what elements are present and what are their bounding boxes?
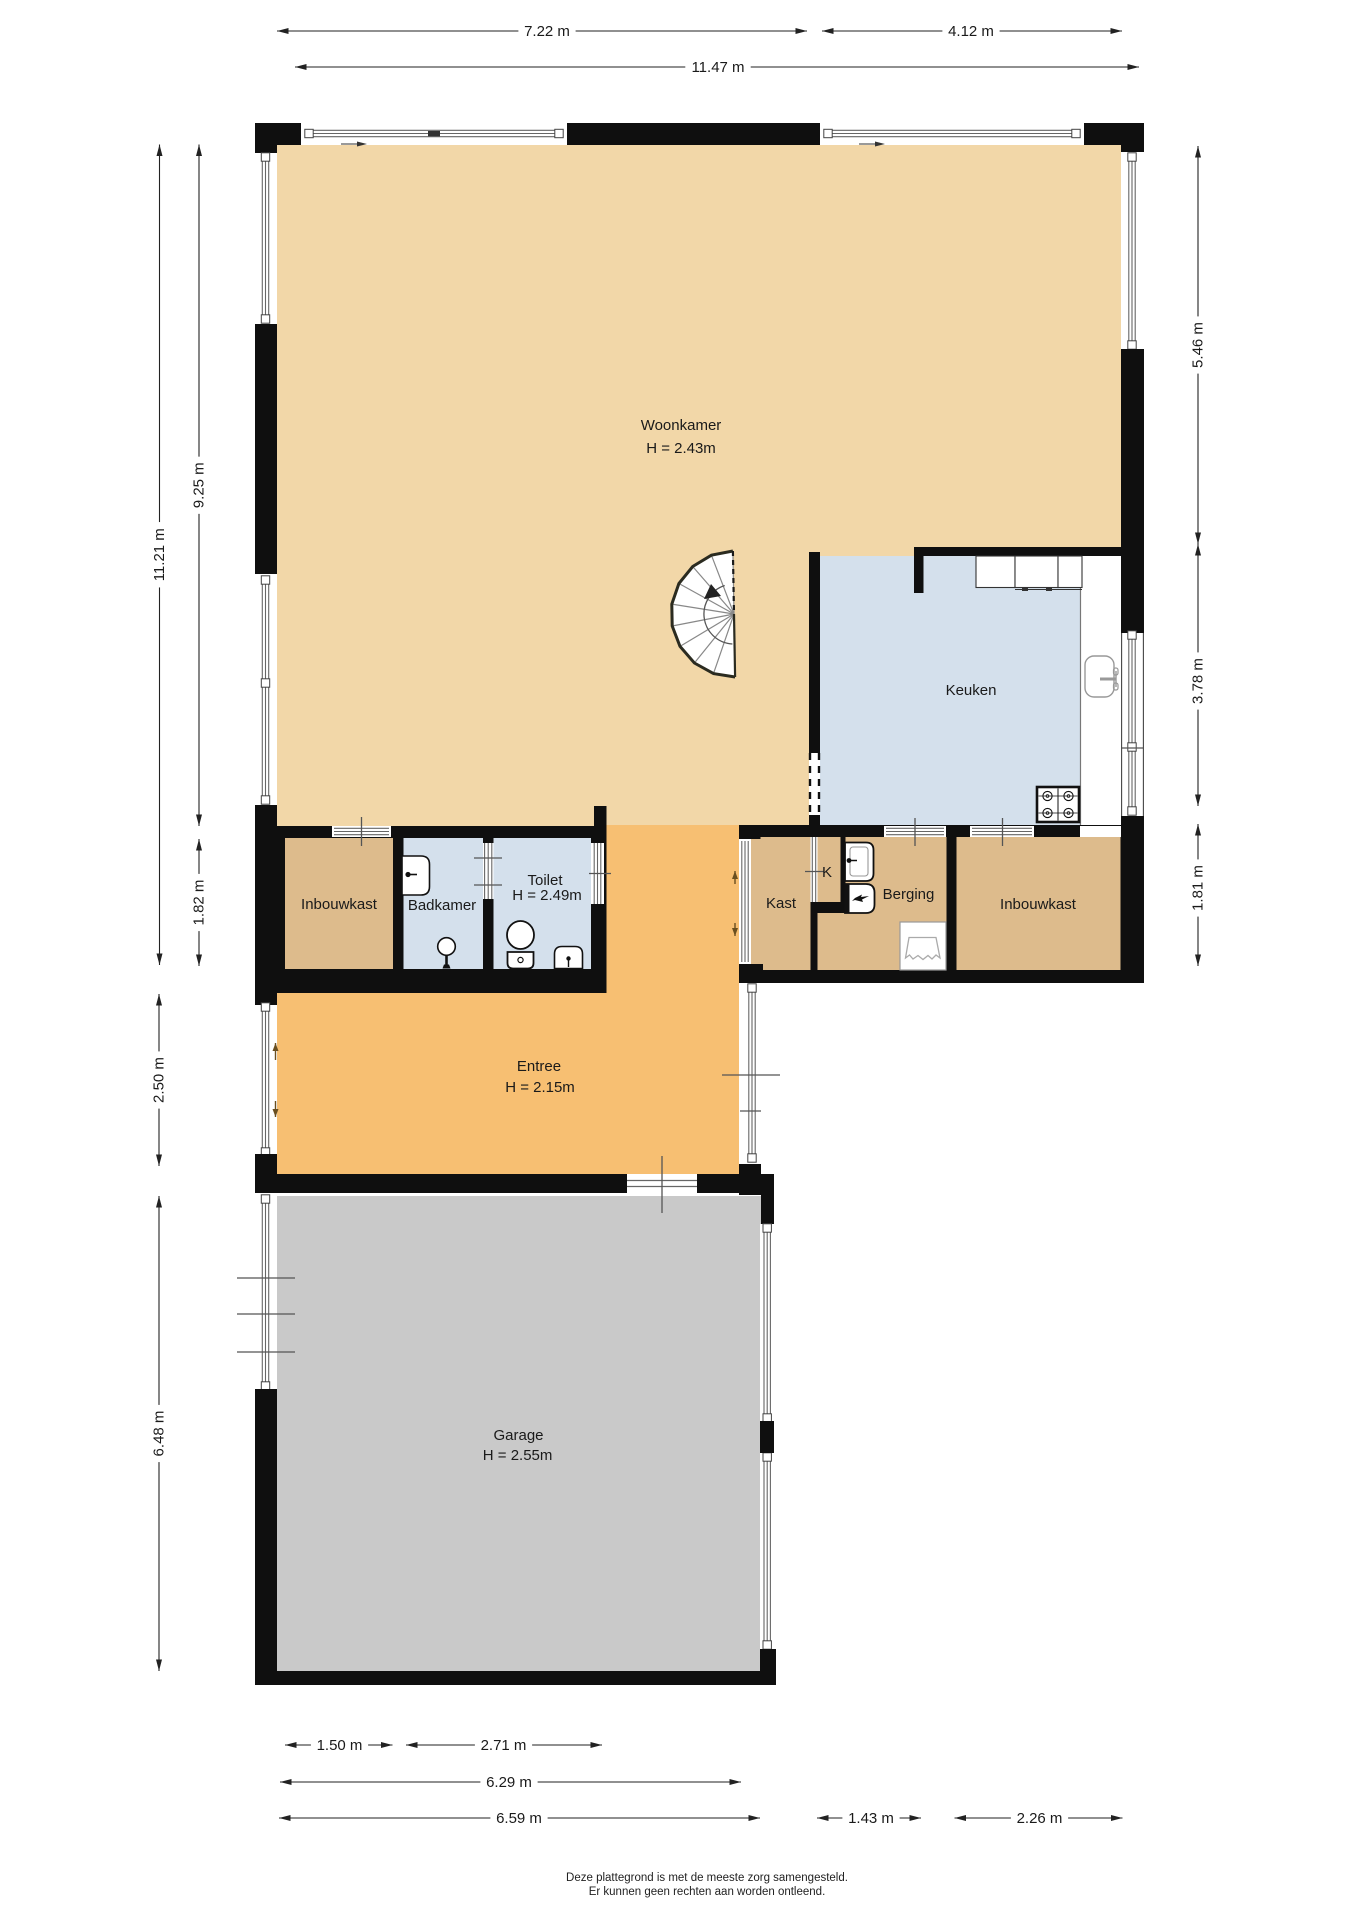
svg-text:Berging: Berging [883,886,935,903]
svg-text:Er kunnen geen rechten aan wor: Er kunnen geen rechten aan worden ontlee… [589,1886,826,1898]
svg-text:Keuken: Keuken [946,682,997,699]
svg-text:11.47 m: 11.47 m [691,59,744,76]
svg-text:11.21 m: 11.21 m [151,528,168,581]
svg-text:H = 2.49m: H = 2.49m [512,887,582,904]
svg-text:5.46 m: 5.46 m [1190,322,1207,368]
svg-text:4.12 m: 4.12 m [948,23,994,40]
svg-text:H = 2.43m: H = 2.43m [646,440,716,457]
svg-text:1.43 m: 1.43 m [848,1810,894,1827]
svg-text:Badkamer: Badkamer [408,897,476,914]
svg-text:Entree: Entree [517,1058,561,1075]
svg-text:6.59 m: 6.59 m [496,1810,542,1827]
svg-text:2.50 m: 2.50 m [151,1057,168,1103]
svg-text:Inbouwkast: Inbouwkast [301,896,378,913]
svg-text:H = 2.55m: H = 2.55m [483,1447,553,1464]
svg-text:K: K [822,864,832,881]
svg-text:6.29 m: 6.29 m [486,1774,532,1791]
svg-text:2.26 m: 2.26 m [1017,1810,1063,1827]
svg-text:1.82 m: 1.82 m [191,880,208,926]
svg-text:9.25 m: 9.25 m [191,462,208,508]
svg-text:Woonkamer: Woonkamer [641,417,722,434]
svg-text:Inbouwkast: Inbouwkast [1000,896,1077,913]
svg-text:7.22 m: 7.22 m [524,23,570,40]
svg-text:Garage: Garage [493,1427,543,1444]
svg-text:2.71 m: 2.71 m [481,1737,527,1754]
svg-text:Kast: Kast [766,895,797,912]
svg-text:6.48 m: 6.48 m [151,1411,168,1457]
svg-text:Deze plattegrond is met de mee: Deze plattegrond is met de meeste zorg s… [566,1872,848,1884]
svg-text:H = 2.15m: H = 2.15m [505,1079,575,1096]
svg-text:3.78 m: 3.78 m [1190,658,1207,704]
svg-text:1.81 m: 1.81 m [1190,865,1207,911]
svg-text:1.50 m: 1.50 m [317,1737,363,1754]
